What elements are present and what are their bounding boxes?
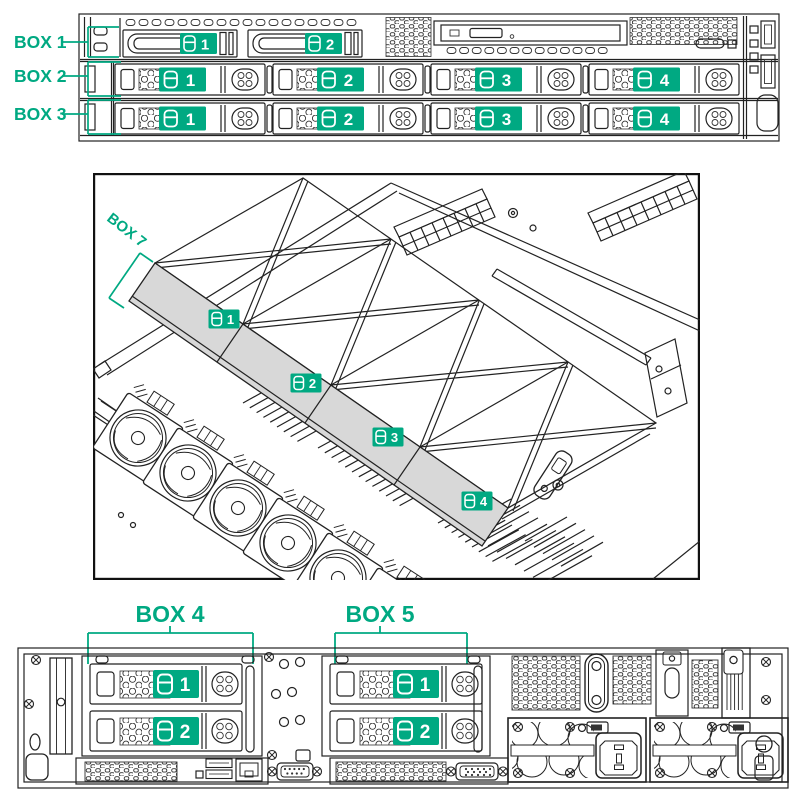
drive-number: 4 (660, 71, 670, 90)
status-led (750, 40, 758, 47)
drive-icon (209, 310, 240, 329)
drive-number: 2 (344, 71, 353, 90)
drive-number: 2 (309, 376, 316, 391)
rear-left-column (25, 656, 73, 781)
drive-bay-badge: 3 (475, 107, 522, 131)
drive-bay-badge: 1 (393, 670, 439, 698)
blank-plate (656, 650, 688, 716)
drive-number: 1 (420, 675, 431, 696)
serial-port (268, 763, 322, 780)
drive-number: 3 (391, 430, 398, 445)
drive-bay-badge: 1 (180, 33, 217, 54)
drive-bay-badge: 4 (633, 107, 680, 131)
drive-bay-badge: 2 (317, 107, 364, 131)
power-button (750, 26, 758, 33)
drive-number: 1 (186, 71, 195, 90)
drive-number: 3 (502, 71, 511, 90)
honeycomb-vent (512, 656, 580, 710)
rear-view-illustration: BOX 4 BOX 5 1 2 (0, 592, 800, 800)
drive-bay-badge: 2 (317, 68, 364, 92)
status-led (196, 771, 203, 778)
rear-middle-plate (265, 653, 311, 762)
drive-icon (393, 670, 439, 698)
power-supply-2 (636, 714, 788, 782)
drive-number: 4 (660, 110, 670, 129)
honeycomb-vent (692, 660, 718, 708)
drive-number: 1 (201, 37, 209, 54)
honeycomb-vent (336, 762, 446, 781)
front-top-band (126, 18, 737, 57)
box5-bracket (335, 626, 467, 664)
box4-label: BOX 4 (135, 601, 204, 627)
psu-grille-area (512, 648, 771, 718)
power-supply-1 (494, 714, 646, 782)
usb-port (206, 770, 232, 779)
drive-bay-badge: 1 (159, 68, 206, 92)
drive-bay-badge: 2 (291, 374, 322, 393)
box3-bracket (62, 100, 121, 134)
box2-bracket (62, 62, 121, 96)
drive-number: 2 (344, 110, 353, 129)
optical-drive-bay (434, 21, 627, 54)
status-led (750, 66, 758, 73)
drive-icon (462, 492, 493, 511)
box2-label: BOX 2 (14, 66, 67, 86)
ethernet-port (236, 759, 262, 781)
vent-slot-row (126, 20, 356, 26)
drive-icon (291, 374, 322, 393)
drive-bay-badge: 4 (633, 68, 680, 92)
front-box1-bays: 1 2 (123, 30, 362, 57)
drive-number: 2 (420, 722, 431, 743)
usb-port (206, 759, 232, 768)
internal-view-illustration: 1 2 3 4 BOX 7 (93, 173, 700, 580)
drive-icon (153, 670, 199, 698)
rear-box4-bays: 1 2 (82, 656, 262, 756)
drive-icon (153, 717, 199, 745)
drive-number: 1 (186, 110, 195, 129)
drive-bay-badge: 1 (209, 310, 240, 329)
rear-io-strip (76, 758, 508, 784)
rear-box5-bays: 1 2 (322, 656, 490, 756)
box5-label: BOX 5 (345, 601, 414, 627)
drive-bay-badge: 4 (462, 492, 493, 511)
drive-icon (393, 717, 439, 745)
drive-number: 4 (480, 494, 488, 509)
honeycomb-vent (85, 762, 177, 781)
drive-bay-badge: 2 (305, 33, 342, 54)
honeycomb-vent (613, 656, 651, 704)
vga-port (447, 763, 508, 780)
drive-bay-badge: 3 (373, 428, 404, 447)
drive-number: 1 (227, 312, 234, 327)
front-control-panel (744, 16, 779, 139)
figure-frame (94, 174, 699, 579)
drive-bay-badge: 3 (475, 68, 522, 92)
box3-label: BOX 3 (14, 104, 67, 124)
drive-bay-badge: 2 (393, 717, 439, 745)
server-bay-diagram: 1 2 1 2 3 4 (0, 0, 800, 800)
box4-bracket (88, 626, 253, 664)
box1-label: BOX 1 (14, 32, 67, 52)
front-box2-bays: 1 2 3 4 (115, 64, 739, 95)
drive-number: 1 (180, 675, 191, 696)
side-bracket (722, 648, 750, 718)
front-box3-bays: 1 2 3 4 (115, 103, 739, 134)
drive-bay-badge: 1 (153, 670, 199, 698)
drive-number: 2 (326, 37, 334, 54)
drive-number: 3 (502, 110, 511, 129)
drive-icon (180, 33, 217, 54)
honeycomb-vent (386, 18, 431, 57)
drive-bay-badge: 1 (159, 107, 206, 131)
honeycomb-vent (630, 18, 737, 45)
drive-number: 2 (180, 722, 191, 743)
front-view-illustration: 1 2 1 2 3 4 (0, 0, 800, 156)
drive-icon (305, 33, 342, 54)
drive-icon (373, 428, 404, 447)
oval-emblem (585, 654, 608, 712)
drive-bay-badge: 2 (153, 717, 199, 745)
